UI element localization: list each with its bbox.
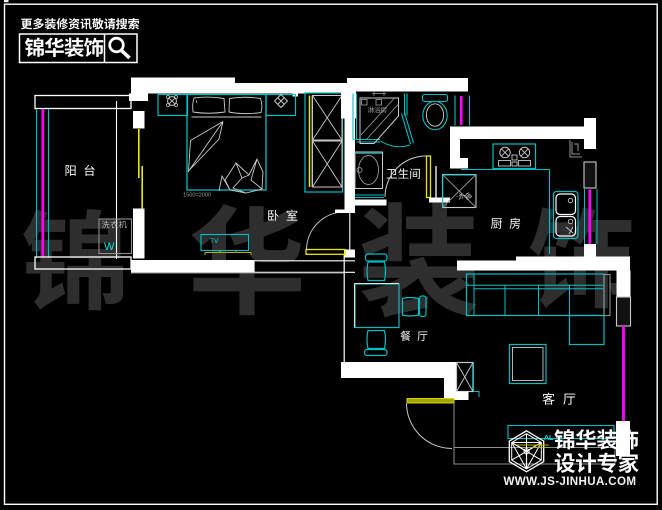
svg-text:TV: TV bbox=[210, 238, 219, 245]
svg-text:AL: AL bbox=[544, 435, 554, 442]
svg-text:W: W bbox=[104, 241, 115, 253]
svg-text:WWW.JS-JINHUA.COM: WWW.JS-JINHUA.COM bbox=[504, 475, 637, 488]
svg-text:1500=2000: 1500=2000 bbox=[183, 193, 211, 199]
